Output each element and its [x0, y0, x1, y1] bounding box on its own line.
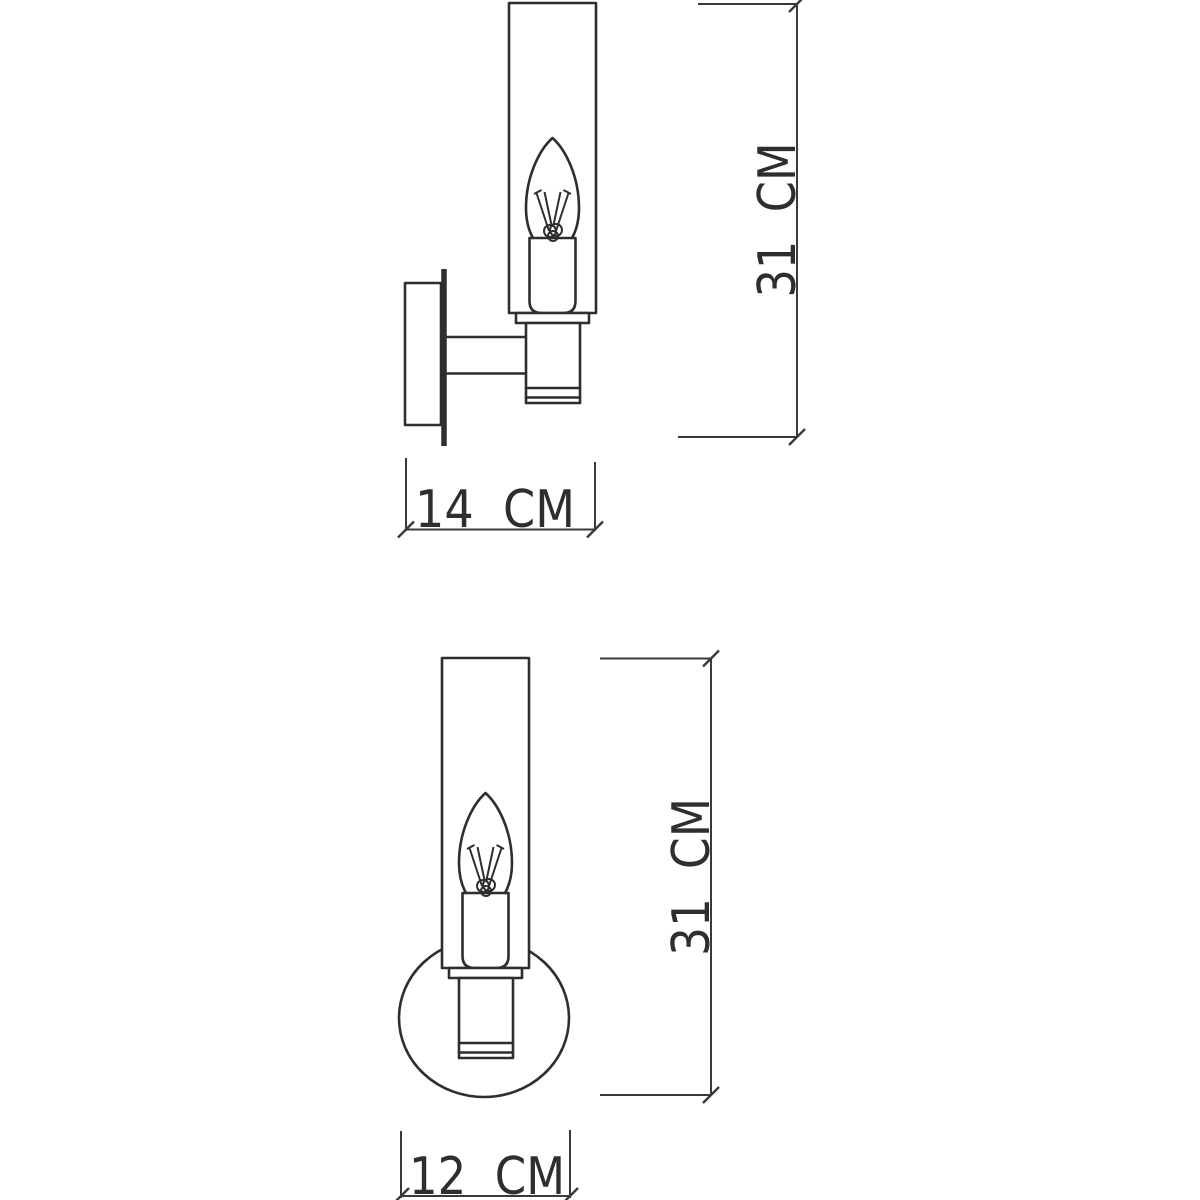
side-width-label: 14 CM [415, 480, 575, 540]
side-view [405, 3, 596, 446]
wall-sconce-dimension-drawing: 31 CM 14 CM 31 CM 12 CM [0, 0, 1200, 1200]
front-view [399, 658, 569, 1097]
lamp-head-side [509, 3, 596, 403]
lamp-head-front [442, 658, 529, 1058]
front-height-dimension: 31 CM [600, 651, 722, 1104]
side-width-dimension: 14 CM [398, 458, 603, 540]
side-height-dimension: 31 CM [678, 0, 808, 445]
wall-plate-side [405, 283, 441, 425]
mounting-arm [447, 337, 527, 374]
front-height-label: 31 CM [662, 798, 722, 956]
side-height-label: 31 CM [748, 143, 808, 298]
front-width-dimension: 12 CM [393, 1130, 578, 1200]
front-width-label: 12 CM [409, 1147, 565, 1200]
technical-drawing-page: 31 CM 14 CM 31 CM 12 CM [0, 0, 1200, 1200]
